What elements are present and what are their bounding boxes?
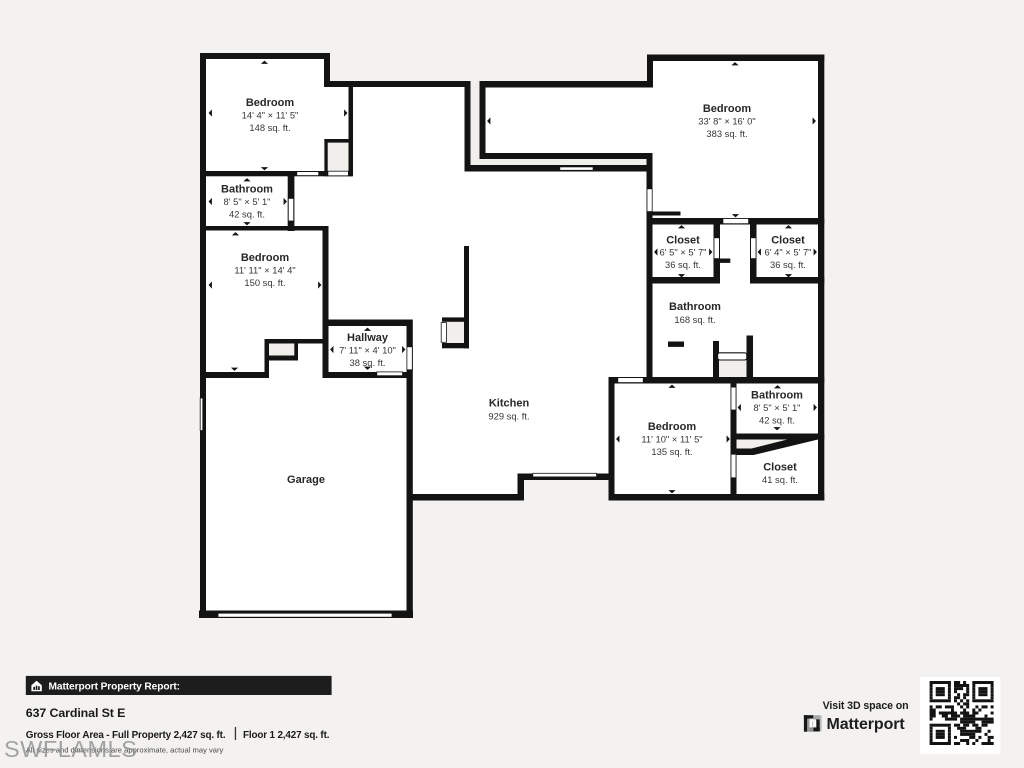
svg-text:36 sq. ft.: 36 sq. ft. — [665, 259, 701, 270]
svg-text:Bedroom: Bedroom — [246, 97, 295, 109]
svg-text:929 sq. ft.: 929 sq. ft. — [488, 410, 529, 421]
svg-text:38 sq. ft.: 38 sq. ft. — [350, 357, 386, 368]
svg-text:41 sq. ft.: 41 sq. ft. — [762, 474, 798, 485]
svg-text:Matterport Property Report:: Matterport Property Report: — [49, 682, 180, 693]
svg-text:Bathroom: Bathroom — [751, 390, 803, 402]
svg-text:8' 5" × 5' 1": 8' 5" × 5' 1" — [224, 196, 271, 207]
svg-text:42 sq. ft.: 42 sq. ft. — [759, 414, 795, 425]
svg-text:Bedroom: Bedroom — [241, 252, 290, 264]
svg-text:Floor 1 2,427 sq. ft.: Floor 1 2,427 sq. ft. — [243, 730, 330, 741]
svg-text:14' 4" × 11' 5": 14' 4" × 11' 5" — [242, 110, 299, 121]
svg-text:11' 10" × 11' 5": 11' 10" × 11' 5" — [641, 434, 702, 445]
svg-text:Closet: Closet — [771, 235, 805, 247]
svg-text:168 sq. ft.: 168 sq. ft. — [674, 314, 715, 325]
svg-text:Bathroom: Bathroom — [221, 184, 273, 196]
svg-text:6' 4" × 5' 7": 6' 4" × 5' 7" — [765, 247, 812, 258]
svg-text:135 sq. ft.: 135 sq. ft. — [651, 446, 692, 457]
svg-text:Closet: Closet — [763, 461, 797, 473]
svg-text:Closet: Closet — [666, 235, 700, 247]
svg-text:637 Cardinal St E: 637 Cardinal St E — [26, 706, 126, 720]
svg-text:36 sq. ft.: 36 sq. ft. — [770, 259, 806, 270]
svg-text:Matterport: Matterport — [827, 716, 906, 733]
svg-text:Kitchen: Kitchen — [489, 398, 530, 410]
svg-text:7' 11" × 4' 10": 7' 11" × 4' 10" — [339, 345, 396, 356]
svg-text:Hallway: Hallway — [347, 332, 389, 344]
svg-text:150 sq. ft.: 150 sq. ft. — [244, 277, 285, 288]
svg-text:11' 11" × 14' 4": 11' 11" × 14' 4" — [234, 265, 295, 276]
svg-text:Garage: Garage — [287, 474, 325, 486]
svg-text:33' 8" × 16' 0": 33' 8" × 16' 0" — [698, 116, 755, 127]
svg-text:148 sq. ft.: 148 sq. ft. — [249, 122, 290, 133]
svg-text:Bathroom: Bathroom — [669, 301, 721, 313]
svg-text:383 sq. ft.: 383 sq. ft. — [706, 128, 747, 139]
svg-text:42 sq. ft.: 42 sq. ft. — [229, 209, 265, 220]
svg-text:Bedroom: Bedroom — [703, 103, 752, 115]
svg-text:8' 5" × 5' 1": 8' 5" × 5' 1" — [754, 402, 801, 413]
svg-text:6' 5" × 5' 7": 6' 5" × 5' 7" — [660, 247, 707, 258]
svg-text:Visit 3D space on: Visit 3D space on — [823, 700, 909, 712]
svg-text:Bedroom: Bedroom — [648, 421, 697, 433]
svg-text:SWFLAMLS: SWFLAMLS — [4, 736, 137, 762]
